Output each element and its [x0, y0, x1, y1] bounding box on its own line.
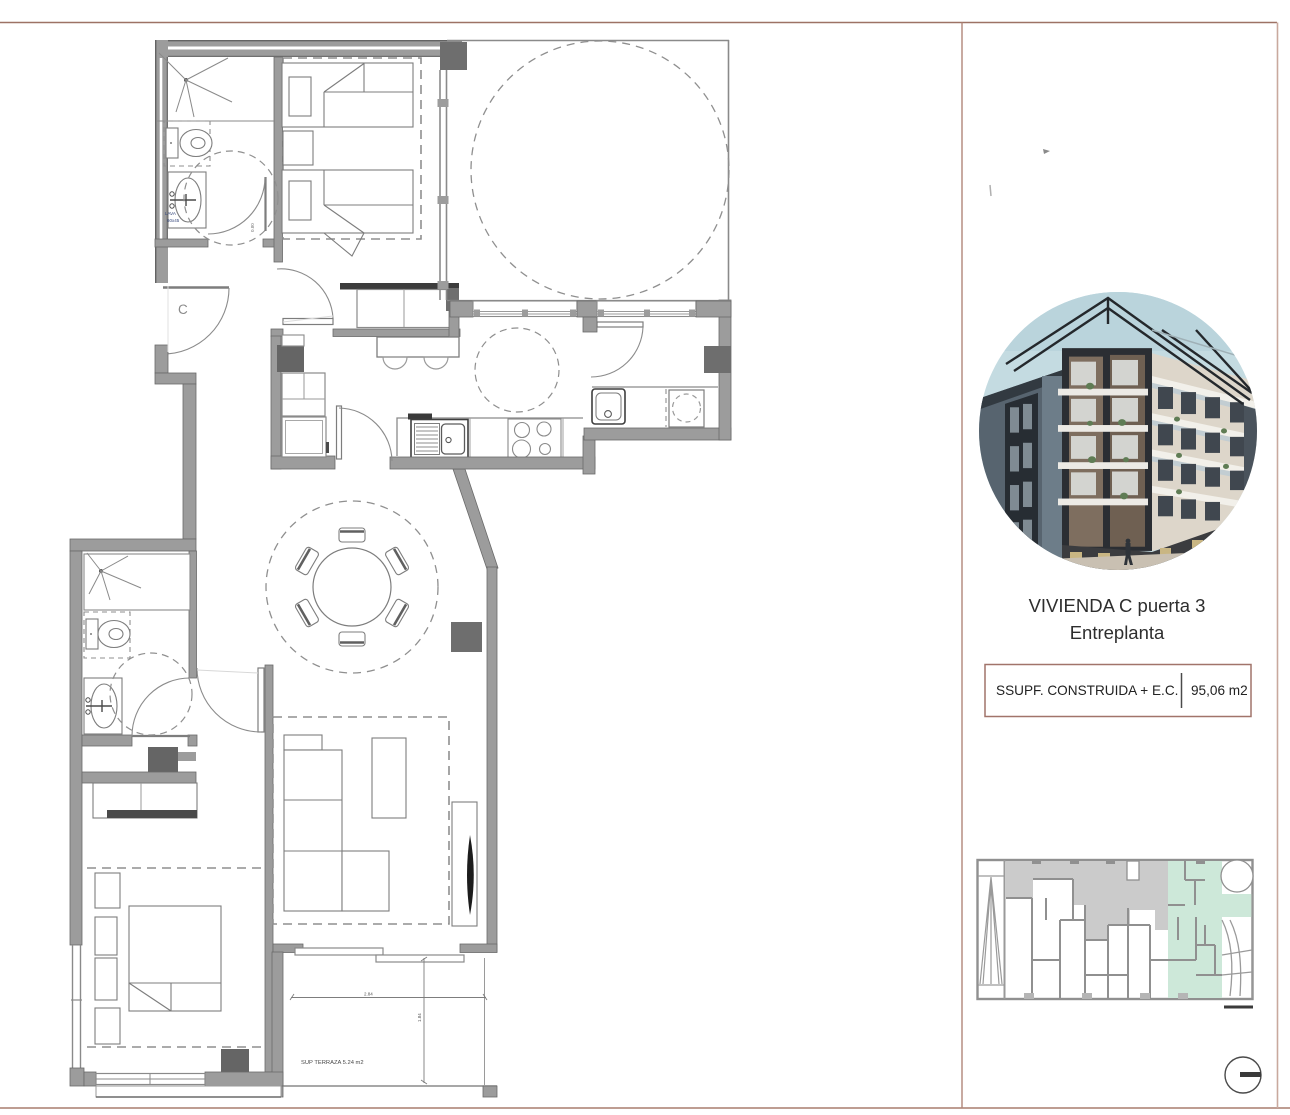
svg-text:95,06 m2: 95,06 m2: [1191, 683, 1248, 698]
svg-text:0.80: 0.80: [250, 223, 255, 232]
svg-text:C: C: [178, 302, 188, 317]
svg-text:1.84: 1.84: [417, 1013, 422, 1022]
svg-text:Entreplanta: Entreplanta: [1070, 622, 1165, 643]
svg-text:SUP TERRAZA 5.24 m2: SUP TERRAZA 5.24 m2: [301, 1060, 364, 1066]
svg-text:VIVIENDA C puerta 3: VIVIENDA C puerta 3: [1029, 595, 1206, 616]
svg-text:SSUPF. CONSTRUIDA + E.C.: SSUPF. CONSTRUIDA + E.C.: [996, 683, 1178, 698]
svg-text:60x45: 60x45: [167, 218, 180, 223]
svg-text:2.84: 2.84: [364, 992, 373, 997]
svg-text:LAVA: LAVA: [165, 211, 176, 216]
